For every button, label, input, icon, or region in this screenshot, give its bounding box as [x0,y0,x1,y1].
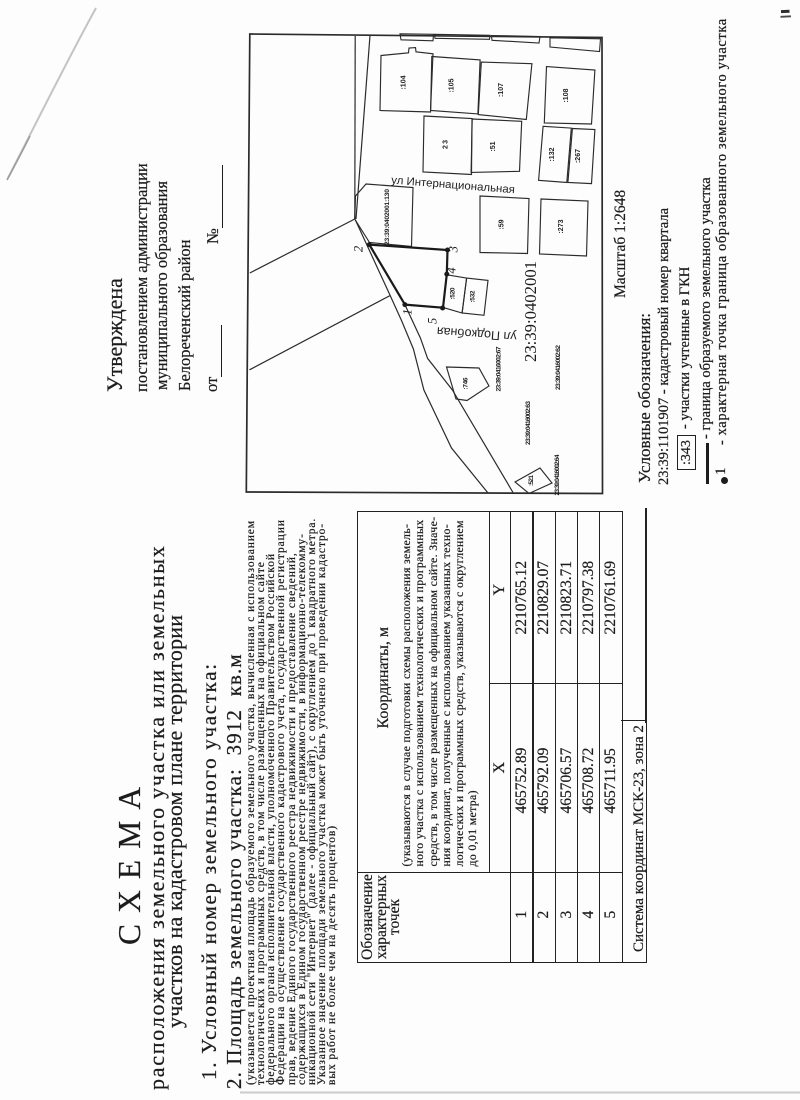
svg-text:23:39:0416002:67: 23:39:0416002:67 [496,346,503,391]
svg-text::51: :51 [490,141,497,151]
svg-text::107: :107 [498,83,505,97]
svg-text:ул Подкобная: ул Подкобная [436,324,517,344]
svg-text:23:39:0416002:63: 23:39:0416002:63 [525,401,532,445]
svg-text:4: 4 [445,267,459,273]
svg-text:ул Интернациональная: ул Интернациональная [391,175,516,197]
svg-text::132: :132 [549,147,556,161]
svg-text:23:39:0416002:62: 23:39:0416002:62 [555,345,562,390]
svg-text::104: :104 [401,75,408,89]
svg-text::746: :746 [463,377,470,389]
svg-text::59: :59 [499,219,506,229]
svg-text:23:39:0416002:64: 23:39:0416002:64 [554,454,561,495]
svg-text:3: 3 [447,246,461,253]
svg-text:1: 1 [401,309,415,315]
svg-text:23: 23 [443,140,450,149]
svg-text:23:39:0402001:130: 23:39:0402001:130 [384,189,391,245]
svg-text::521: :521 [528,475,535,486]
svg-text::267: :267 [575,149,582,163]
svg-text::273: :273 [558,219,565,233]
svg-text:5: 5 [425,318,439,324]
svg-text::105: :105 [449,78,456,92]
svg-text:23:39:0402001: 23:39:0402001 [521,261,540,362]
svg-text::520: :520 [450,287,457,299]
svg-text::108: :108 [563,88,570,102]
svg-text:2: 2 [352,246,366,252]
svg-text::532: :532 [470,290,477,302]
